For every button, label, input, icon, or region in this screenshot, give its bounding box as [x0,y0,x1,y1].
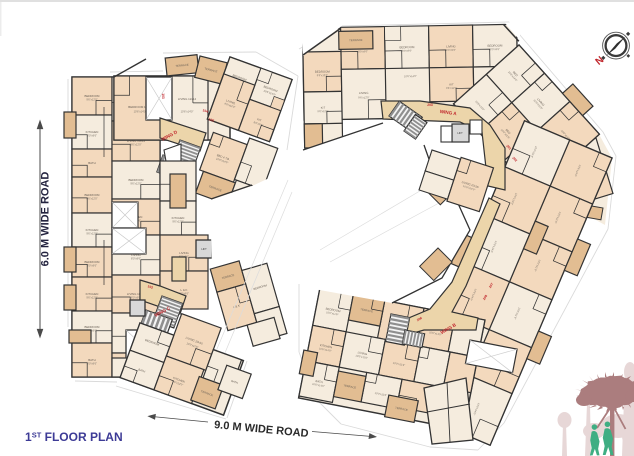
svg-text:LIFT: LIFT [457,131,463,135]
svg-text:9'6"x12'0": 9'6"x12'0" [172,220,183,224]
svg-text:KITCHEN: KITCHEN [86,130,99,134]
svg-text:KIT: KIT [449,82,454,86]
svg-text:LIVING 12x14: LIVING 12x14 [178,97,197,101]
svg-text:BEDROOM: BEDROOM [399,45,415,49]
svg-text:BEDROOM: BEDROOM [487,44,503,48]
svg-text:KITCHEN: KITCHEN [86,228,99,232]
svg-text:8'0"x9'6": 8'0"x9'6" [87,134,97,138]
svg-text:6.0 M WIDE ROAD: 6.0 M WIDE ROAD [40,172,52,267]
svg-text:9'6"x12'0": 9'6"x12'0" [358,95,369,99]
svg-text:LIFT: LIFT [201,247,207,251]
svg-text:8'0"x9'6": 8'0"x9'6" [131,257,141,261]
svg-text:10'6"x14'0": 10'6"x14'0" [181,110,194,114]
svg-text:LIVING: LIVING [446,44,456,48]
svg-text:KIT: KIT [321,106,326,110]
svg-text:8'0"x9'6": 8'0"x9'6" [87,362,97,366]
svg-text:10'6"x14'0": 10'6"x14'0" [134,110,147,114]
svg-text:8'0"x9'6": 8'0"x9'6" [87,264,97,268]
svg-text:103: 103 [161,93,165,99]
svg-text:BEDROOM: BEDROOM [85,260,101,264]
svg-text:BEDROOM: BEDROOM [129,178,145,182]
svg-text:9'6"x12'0": 9'6"x12'0" [130,143,141,147]
svg-text:BEDROOM: BEDROOM [85,193,101,197]
svg-text:KITCHEN: KITCHEN [86,292,99,296]
svg-text:BEDROOM: BEDROOM [85,325,101,329]
svg-text:9'6"x12'0": 9'6"x12'0" [86,197,97,201]
svg-text:BATH: BATH [88,161,96,165]
svg-text:203: 203 [427,103,433,107]
svg-text:10'6"x14'0": 10'6"x14'0" [404,74,417,78]
svg-text:KITCHEN: KITCHEN [172,216,185,220]
svg-text:LIVING: LIVING [359,91,369,95]
svg-text:LIVING: LIVING [179,251,189,255]
svg-text:TERRACE: TERRACE [349,38,363,42]
svg-text:BEDROOM: BEDROOM [85,94,101,98]
svg-text:9'6"x12'0": 9'6"x12'0" [130,182,141,186]
svg-text:BATH: BATH [88,358,96,362]
svg-text:L & K: L & K [181,288,188,292]
svg-text:BEDROOM: BEDROOM [315,70,331,74]
